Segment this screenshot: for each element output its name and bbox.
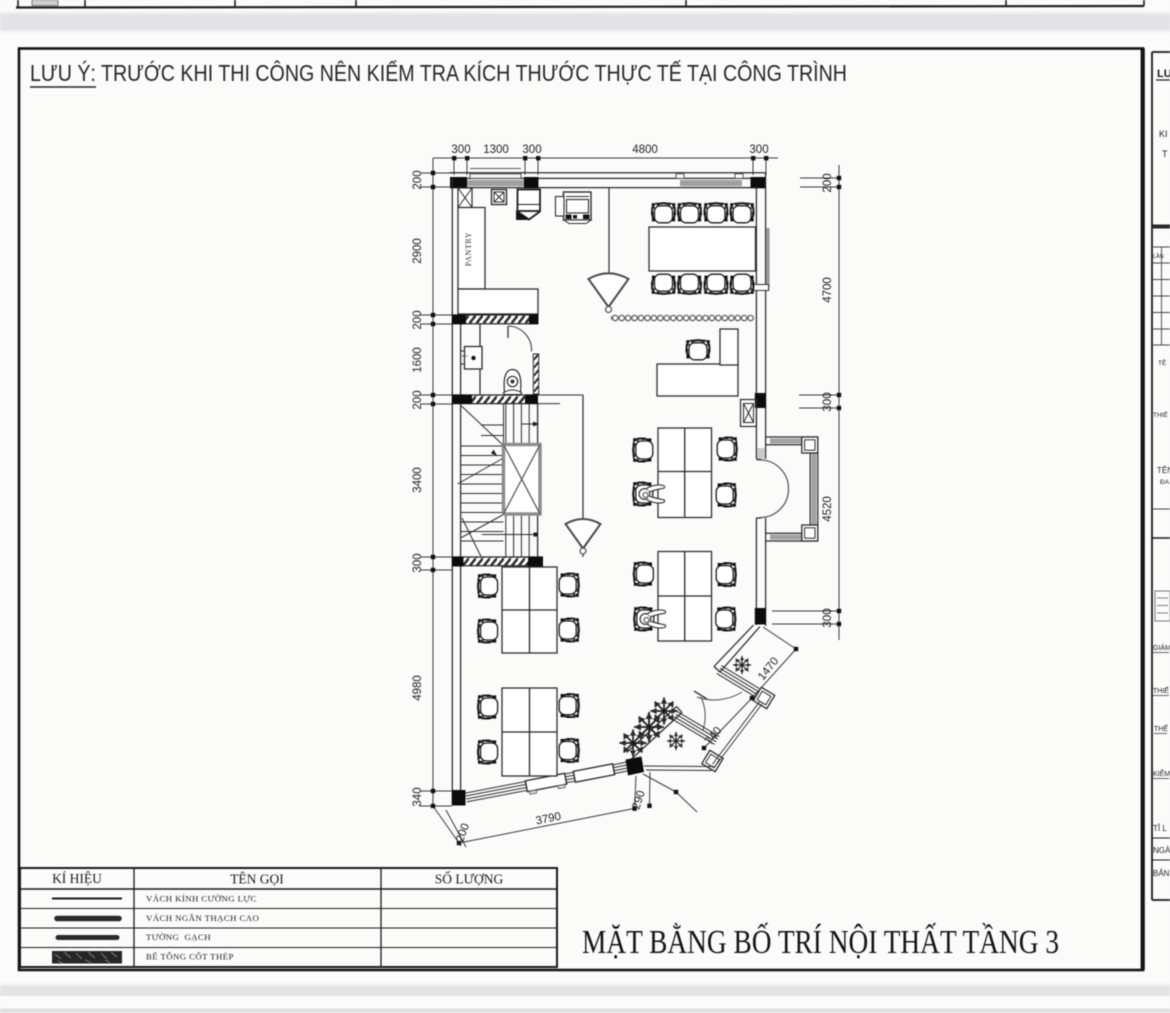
- svg-text:SỐ LƯỢNG: SỐ LƯỢNG: [435, 872, 504, 887]
- svg-text:TỈ L: TỈ L: [1153, 824, 1167, 833]
- svg-text:4520: 4520: [822, 496, 834, 522]
- svg-text:LƯU Ý: TRƯỚC KHI THI CÔNG NÊN: LƯU Ý: TRƯỚC KHI THI CÔNG NÊN KIỂM TRA K…: [30, 59, 847, 86]
- svg-text:KI: KI: [1159, 129, 1168, 139]
- svg-text:200: 200: [412, 170, 424, 189]
- svg-text:300: 300: [451, 144, 470, 156]
- svg-text:KIỂM: KIỂM: [1153, 769, 1170, 778]
- svg-text:PANTRY: PANTRY: [464, 232, 473, 266]
- svg-text:BÊ TÔNG CỐT THÉP: BÊ TÔNG CỐT THÉP: [146, 952, 234, 962]
- svg-text:VÁCH KÍNH CƯỜNG LỰC: VÁCH KÍNH CƯỜNG LỰC: [146, 894, 257, 904]
- svg-text:TÊN: TÊN: [1157, 466, 1170, 475]
- svg-text:GIÁM: GIÁM: [1153, 643, 1170, 652]
- svg-text:VÁCH NGĂN THẠCH CAO: VÁCH NGĂN THẠCH CAO: [146, 913, 259, 923]
- svg-text:300: 300: [822, 608, 834, 627]
- svg-text:300: 300: [412, 553, 424, 572]
- svg-text:300: 300: [522, 144, 541, 156]
- svg-text:KÍ HIỆU: KÍ HIỆU: [52, 871, 102, 886]
- svg-text:TÊN GỌI: TÊN GỌI: [230, 872, 284, 887]
- svg-text:4980: 4980: [412, 675, 424, 701]
- svg-text:3400: 3400: [412, 467, 424, 493]
- svg-text:TƯỜNG GẠCH: TƯỜNG GẠCH: [146, 932, 211, 942]
- svg-text:4800: 4800: [632, 144, 658, 156]
- svg-text:340: 340: [412, 787, 424, 806]
- svg-text:4700: 4700: [822, 277, 834, 303]
- svg-text:1300: 1300: [483, 144, 509, 156]
- svg-text:T: T: [1162, 149, 1168, 159]
- svg-text:LƯ: LƯ: [1157, 68, 1170, 80]
- svg-text:BẢN: BẢN: [1153, 869, 1170, 878]
- svg-text:200: 200: [412, 310, 424, 329]
- svg-text:TÊ: TÊ: [1158, 358, 1167, 367]
- svg-text:NGÀ: NGÀ: [1153, 846, 1170, 855]
- svg-text:1600: 1600: [412, 347, 424, 373]
- svg-text:200: 200: [412, 390, 424, 409]
- svg-text:ĐA: ĐA: [1160, 479, 1170, 486]
- svg-text:200: 200: [822, 173, 834, 192]
- svg-text:300: 300: [749, 144, 768, 156]
- svg-text:LẦN: LẦN: [1153, 253, 1164, 260]
- svg-text:300: 300: [822, 392, 834, 411]
- svg-text:MẶT BẰNG BỐ TRÍ NỘI THẤT TẦNG: MẶT BẰNG BỐ TRÍ NỘI THẤT TẦNG 3: [582, 922, 1059, 961]
- svg-text:2900: 2900: [412, 238, 424, 264]
